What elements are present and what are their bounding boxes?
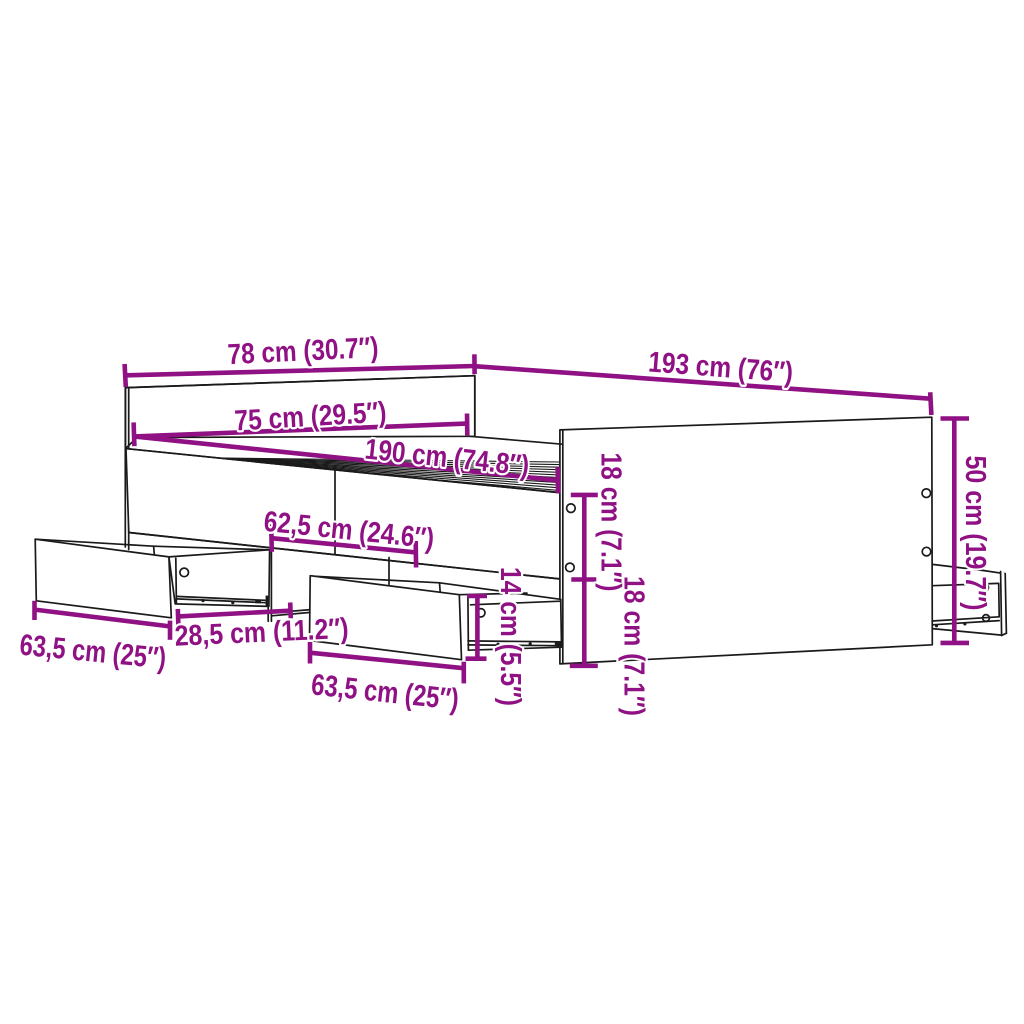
svg-text:18 cm (7.1″): 18 cm (7.1″)	[595, 453, 627, 592]
svg-text:50 cm (19.7″): 50 cm (19.7″)	[959, 456, 991, 611]
svg-text:14 cm (5.5″): 14 cm (5.5″)	[494, 567, 526, 706]
svg-text:18 cm (7.1″): 18 cm (7.1″)	[618, 576, 650, 716]
